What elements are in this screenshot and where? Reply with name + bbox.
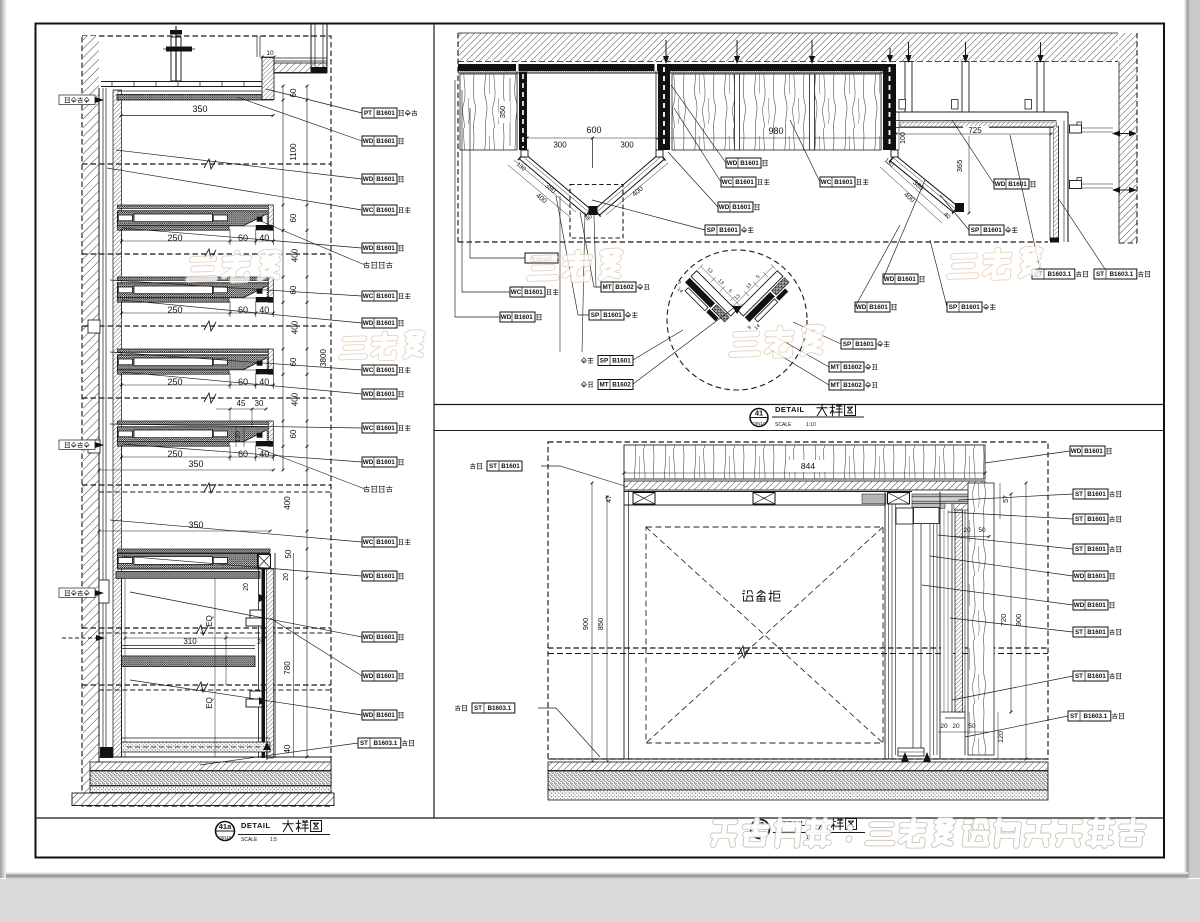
svg-text:120: 120	[998, 731, 1005, 743]
svg-text:WD: WD	[719, 204, 730, 211]
svg-text:B1601: B1601	[376, 459, 395, 466]
svg-text:350: 350	[188, 459, 203, 469]
svg-text:250: 250	[167, 233, 182, 243]
svg-text:1:10: 1:10	[806, 422, 816, 428]
svg-text:B1601: B1601	[376, 425, 395, 432]
svg-text:600: 600	[586, 125, 601, 135]
svg-text:60: 60	[238, 449, 248, 459]
svg-text:SP: SP	[971, 227, 979, 234]
svg-text:B1603.1: B1603.1	[1047, 271, 1071, 278]
svg-text:60: 60	[289, 213, 298, 222]
svg-text:B1601: B1601	[376, 673, 395, 680]
svg-text:B1602: B1602	[612, 382, 631, 389]
svg-text:DETAIL: DETAIL	[775, 405, 805, 414]
svg-text:B1601: B1601	[961, 304, 980, 311]
svg-text:MT: MT	[830, 382, 839, 389]
svg-text:SP: SP	[707, 227, 715, 234]
svg-text:B1601: B1601	[719, 227, 738, 234]
svg-text:B1601: B1601	[376, 573, 395, 580]
svg-text:B1601: B1601	[1087, 629, 1106, 636]
svg-text:B1601: B1601	[514, 314, 533, 321]
svg-text:B1601: B1601	[376, 712, 395, 719]
svg-text:60: 60	[238, 377, 248, 387]
svg-text:WD: WD	[363, 138, 374, 145]
svg-text:300: 300	[620, 141, 634, 150]
svg-text:B1601: B1601	[376, 138, 395, 145]
svg-text:WD: WD	[1074, 573, 1085, 580]
svg-text:WC: WC	[511, 289, 522, 296]
svg-text:B1601: B1601	[501, 463, 520, 470]
svg-text:WD: WD	[363, 573, 374, 580]
svg-text:WD: WD	[363, 459, 374, 466]
svg-text:980: 980	[768, 126, 783, 136]
svg-text:10: 10	[266, 50, 274, 57]
svg-text:41a: 41a	[219, 822, 232, 831]
svg-text:MT: MT	[830, 364, 839, 371]
svg-text:B1601: B1601	[1087, 673, 1106, 680]
svg-text:ST: ST	[1096, 271, 1104, 278]
svg-text:400: 400	[283, 496, 292, 510]
svg-text:B1601: B1601	[834, 179, 853, 186]
svg-text:WC: WC	[722, 179, 733, 186]
svg-text:400: 400	[291, 248, 300, 262]
svg-text:B1603.1: B1603.1	[1109, 271, 1133, 278]
svg-text:250: 250	[167, 377, 182, 387]
svg-text:WD: WD	[363, 245, 374, 252]
svg-text:250: 250	[167, 305, 182, 315]
svg-text:QIN15: QIN15	[218, 835, 232, 840]
svg-text:57: 57	[1003, 495, 1010, 503]
svg-text:310: 310	[183, 637, 197, 646]
svg-text:300: 300	[553, 141, 567, 150]
svg-text:B1602: B1602	[843, 364, 862, 371]
svg-text:WD: WD	[856, 304, 867, 311]
svg-text:B1602: B1602	[843, 382, 862, 389]
svg-text:45: 45	[237, 399, 246, 408]
svg-text:ST: ST	[474, 705, 482, 712]
svg-text:MT: MT	[599, 382, 608, 389]
svg-text:SP: SP	[600, 358, 608, 365]
svg-text:ST: ST	[1075, 673, 1083, 680]
svg-text:EQ: EQ	[205, 697, 214, 709]
svg-text:B1601: B1601	[732, 204, 751, 211]
svg-text:WC: WC	[821, 179, 832, 186]
svg-text:QIN10: QIN10	[752, 421, 766, 426]
svg-text:20: 20	[243, 583, 250, 591]
svg-text:WD: WD	[995, 181, 1006, 188]
svg-text:350: 350	[188, 520, 203, 530]
svg-text:850: 850	[596, 618, 605, 631]
svg-text:B1601: B1601	[376, 176, 395, 183]
svg-text:B1602: B1602	[615, 284, 634, 291]
svg-text:20: 20	[940, 723, 948, 730]
svg-text:B1603.1: B1603.1	[373, 740, 397, 747]
svg-text:WC: WC	[363, 367, 374, 374]
svg-text:B1601: B1601	[524, 289, 543, 296]
svg-text:ST: ST	[360, 740, 368, 747]
svg-text:SCALE: SCALE	[241, 837, 258, 843]
svg-text:B1601: B1601	[735, 179, 754, 186]
svg-text:B1601: B1601	[740, 160, 759, 167]
svg-text:WD: WD	[1071, 448, 1082, 455]
svg-text:B1601: B1601	[897, 276, 916, 283]
svg-text:B1603.1: B1603.1	[1083, 713, 1107, 720]
svg-text:WD: WD	[363, 391, 374, 398]
svg-text:250: 250	[167, 449, 182, 459]
svg-text:780: 780	[283, 661, 292, 675]
svg-text:3800: 3800	[319, 349, 328, 367]
svg-text:B1601: B1601	[376, 207, 395, 214]
svg-text:SP: SP	[591, 312, 599, 319]
svg-text:60: 60	[238, 305, 248, 315]
svg-text:WC: WC	[363, 539, 374, 546]
svg-text:20: 20	[257, 639, 265, 646]
svg-text:B1601: B1601	[855, 341, 874, 348]
svg-text:400: 400	[291, 392, 300, 406]
svg-text:WC: WC	[363, 425, 374, 432]
svg-text:ST: ST	[1075, 546, 1083, 553]
svg-text:400: 400	[291, 320, 300, 334]
svg-text:350: 350	[192, 104, 207, 114]
svg-text:B1601: B1601	[1087, 602, 1106, 609]
svg-text:ST: ST	[1075, 491, 1083, 498]
svg-text:900: 900	[581, 618, 590, 631]
svg-text:B1601: B1601	[376, 245, 395, 252]
svg-text:B1601: B1601	[376, 110, 395, 117]
svg-text:B1601: B1601	[1084, 448, 1103, 455]
svg-text:MT: MT	[602, 284, 611, 291]
svg-text:WD: WD	[363, 673, 374, 680]
svg-text:40: 40	[259, 233, 269, 243]
svg-text:20: 20	[283, 573, 290, 581]
svg-text:100: 100	[900, 132, 907, 144]
svg-text:50: 50	[968, 723, 976, 730]
svg-text:WD: WD	[501, 314, 512, 321]
svg-text:ST: ST	[1070, 713, 1078, 720]
svg-text:B1601: B1601	[376, 293, 395, 300]
svg-text:20: 20	[963, 527, 971, 534]
svg-text:B1601: B1601	[1087, 516, 1106, 523]
svg-text:ST: ST	[489, 463, 497, 470]
svg-text:50: 50	[284, 549, 293, 558]
svg-text:WC: WC	[363, 293, 374, 300]
svg-text:WD: WD	[363, 634, 374, 641]
svg-text:ST: ST	[1075, 629, 1083, 636]
svg-text:1100: 1100	[289, 143, 298, 161]
svg-text:47: 47	[606, 495, 613, 503]
svg-text:WD: WD	[727, 160, 738, 167]
svg-text:50: 50	[978, 527, 986, 534]
svg-text:1:5: 1:5	[270, 837, 277, 843]
svg-text:SP: SP	[843, 341, 851, 348]
svg-text:WD: WD	[363, 176, 374, 183]
svg-text:ST: ST	[1075, 516, 1083, 523]
svg-text:B1601: B1601	[376, 367, 395, 374]
svg-text:WD: WD	[363, 712, 374, 719]
svg-text:41: 41	[755, 409, 763, 418]
svg-text:SCALE: SCALE	[775, 422, 792, 428]
svg-text:PT: PT	[364, 110, 372, 117]
svg-text:60: 60	[289, 285, 298, 294]
svg-text:EQ: EQ	[205, 615, 214, 627]
svg-text:B1601: B1601	[376, 539, 395, 546]
svg-text:B1601: B1601	[376, 391, 395, 398]
svg-text:B1601: B1601	[1087, 573, 1106, 580]
svg-text:WC: WC	[363, 207, 374, 214]
svg-text:350: 350	[498, 106, 507, 119]
svg-text:B1601: B1601	[1087, 491, 1106, 498]
svg-text:B1601: B1601	[983, 227, 1002, 234]
svg-text:SP: SP	[949, 304, 957, 311]
svg-text:60: 60	[289, 429, 298, 438]
svg-text:844: 844	[801, 461, 815, 471]
svg-text:WD: WD	[1074, 602, 1085, 609]
svg-text:B1601: B1601	[612, 358, 631, 365]
svg-text:DETAIL: DETAIL	[241, 821, 271, 830]
svg-text:30: 30	[255, 399, 264, 408]
svg-text:B1601: B1601	[869, 304, 888, 311]
svg-text:WD: WD	[884, 276, 895, 283]
svg-text:40: 40	[283, 744, 292, 753]
svg-text:B1601: B1601	[603, 312, 622, 319]
svg-text:WD: WD	[363, 320, 374, 327]
svg-text:900: 900	[1014, 614, 1023, 627]
svg-text:365: 365	[955, 160, 964, 173]
svg-text:B1601: B1601	[1087, 546, 1106, 553]
svg-text:B1601: B1601	[1008, 181, 1027, 188]
svg-text:B1603.1: B1603.1	[487, 705, 511, 712]
svg-text:B1601: B1601	[376, 634, 395, 641]
svg-text:20: 20	[952, 723, 960, 730]
svg-text:B1601: B1601	[376, 320, 395, 327]
svg-text:725: 725	[968, 126, 982, 135]
